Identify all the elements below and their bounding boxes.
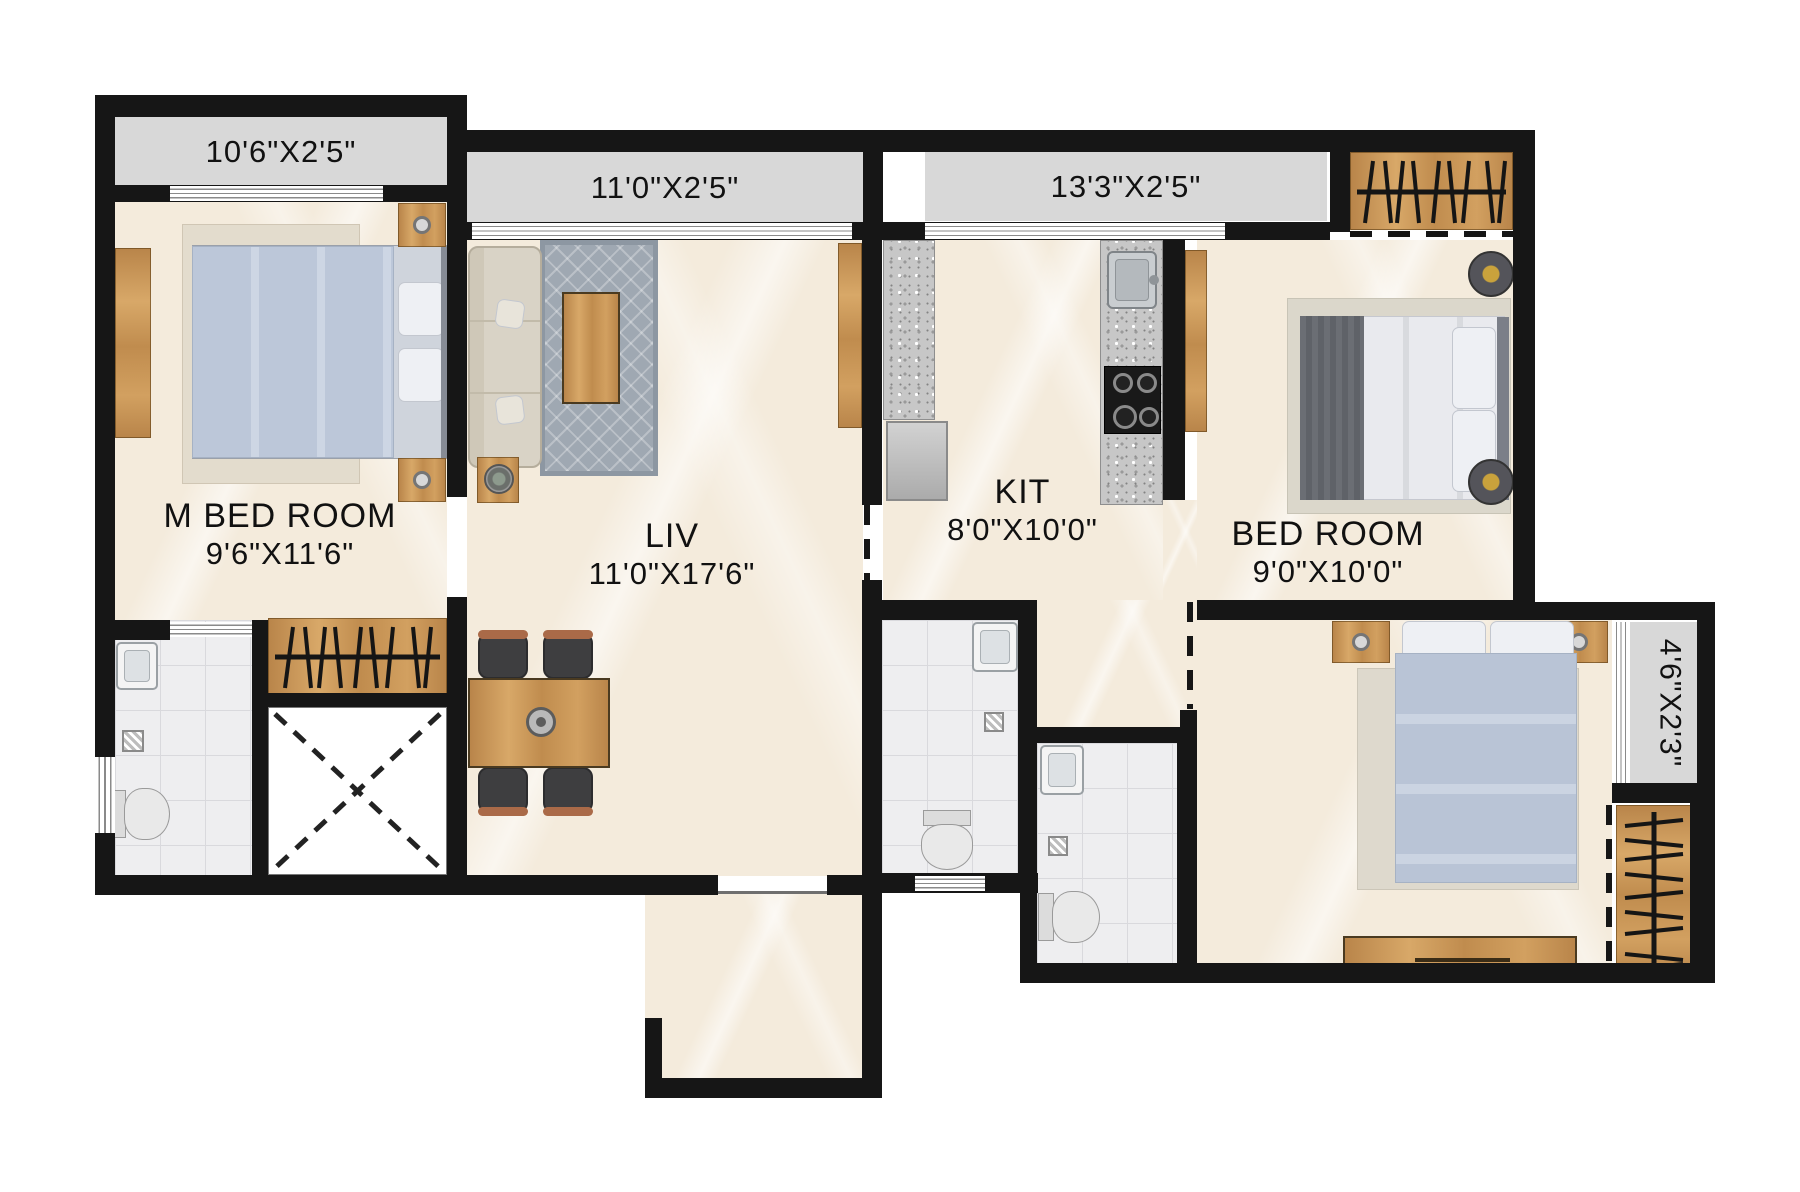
- basin-bowl-icon: [1048, 753, 1076, 787]
- dining-chair: [478, 767, 528, 813]
- wall: [862, 580, 882, 878]
- wall: [1330, 130, 1350, 232]
- attached-toilet-basin: [1040, 745, 1084, 795]
- wall: [862, 240, 882, 505]
- master-wardrobe: [115, 248, 151, 438]
- wall: [447, 130, 1535, 152]
- balcony-side-dims: 4'6"X2'3": [1652, 638, 1686, 767]
- chair-back-icon: [543, 630, 593, 639]
- coffee-table: [562, 292, 620, 404]
- master-toilet-wc: [110, 788, 170, 838]
- wall: [1037, 727, 1197, 743]
- wall: [447, 875, 718, 895]
- chair-back-icon: [543, 807, 593, 816]
- balcony-living-dims: 11'0"X2'5": [591, 170, 739, 206]
- window-kitchen-balcony: [925, 223, 1225, 239]
- teapot-icon: [526, 707, 556, 737]
- dresser-handle-icon: [1415, 958, 1510, 962]
- door-common-toilet: [915, 876, 985, 891]
- bedroom-door-dash: [1187, 602, 1193, 709]
- wall: [447, 95, 467, 222]
- burner-icon: [1113, 405, 1137, 429]
- attached-toilet-wc: [1038, 891, 1100, 941]
- room-name: LIV: [645, 517, 699, 556]
- tv-unit: [838, 243, 862, 428]
- wall: [880, 600, 1037, 620]
- duct-shaft: [268, 707, 447, 875]
- teapot-lid-icon: [536, 717, 546, 727]
- burner-icon: [1139, 407, 1159, 427]
- label-master-bedroom: M BED ROOM 9'6"X11'6": [112, 482, 448, 586]
- nightstand-knob-icon: [1352, 633, 1370, 651]
- bedroom-bottom-wardrobe-hatch: [1616, 805, 1692, 978]
- wall: [645, 1078, 882, 1098]
- dining-chair: [478, 633, 528, 679]
- passage-floor: [1037, 600, 1197, 728]
- master-bed-pillow: [398, 348, 444, 402]
- dining-chair: [543, 633, 593, 679]
- wardrobe-opening-dash: [1606, 805, 1612, 978]
- foyer-floor: [645, 893, 862, 1080]
- wall: [95, 620, 170, 640]
- master-bed-pillow: [398, 282, 444, 336]
- wall: [95, 95, 467, 117]
- room-dims: 9'0"X10'0": [1253, 554, 1404, 590]
- wardrobe-hatch-icon: [269, 619, 446, 694]
- master-bed-duvet: [192, 246, 394, 458]
- dining-chair: [543, 767, 593, 813]
- master-toilet-basin: [116, 642, 158, 690]
- balcony-living: 11'0"X2'5": [467, 152, 863, 223]
- burner-icon: [1113, 373, 1133, 393]
- wall: [1180, 710, 1197, 965]
- bedroom-bottom-duvet: [1395, 653, 1577, 883]
- wall: [1530, 602, 1715, 620]
- common-toilet-drain-icon: [984, 712, 1004, 732]
- common-toilet-wc: [921, 810, 971, 868]
- floor-plan: 10'6"X2'5" 11'0"X2'5" 13'3"X2'5" 4'6"X2'…: [0, 0, 1800, 1192]
- balcony-kitchen-dims: 13'3"X2'5": [1051, 169, 1202, 205]
- wall: [1018, 620, 1037, 876]
- wall: [1180, 963, 1715, 983]
- kitchen-sink: [1107, 251, 1157, 309]
- wall: [863, 130, 883, 240]
- wall: [862, 875, 882, 1098]
- wc-bowl-icon: [124, 788, 170, 840]
- room-dims: 11'0"X17'6": [589, 556, 756, 592]
- room-dims: 8'0"X10'0": [947, 512, 1098, 548]
- room-name: KIT: [995, 473, 1051, 512]
- wall: [268, 693, 447, 707]
- bedside-lamp-icon: [1468, 251, 1514, 297]
- bedroom-top-blanket: [1300, 316, 1364, 500]
- wc-bowl-icon: [921, 824, 973, 870]
- wall: [827, 875, 862, 895]
- wall: [1697, 602, 1715, 783]
- chair-back-icon: [478, 807, 528, 816]
- wall: [447, 597, 467, 895]
- wall: [95, 875, 447, 895]
- window-living-balcony: [472, 223, 852, 239]
- attached-toilet-drain-icon: [1048, 836, 1068, 856]
- bedroom-top-unit: [1185, 250, 1207, 432]
- stove-hob: [1104, 366, 1161, 434]
- label-kitchen: KIT 8'0"X10'0": [920, 458, 1125, 562]
- wardrobe-hatch-icon: [1617, 806, 1691, 977]
- sofa-pillow: [494, 394, 525, 425]
- sofa-pillow: [494, 298, 526, 330]
- burner-icon: [1137, 373, 1157, 393]
- master-nightstand-knob-icon: [413, 216, 431, 234]
- master-wardrobe-hatch: [268, 618, 447, 695]
- wall: [1163, 240, 1185, 500]
- common-toilet-basin: [972, 622, 1018, 672]
- balcony-master-dims: 10'6"X2'5": [206, 134, 357, 170]
- wall: [252, 620, 268, 892]
- sofa: [468, 246, 542, 468]
- window-master-toilet: [95, 757, 115, 833]
- chair-back-icon: [478, 630, 528, 639]
- wall: [1690, 803, 1715, 983]
- wardrobe-opening-dash: [1350, 231, 1513, 237]
- wall: [1612, 783, 1715, 803]
- dresser: [1343, 936, 1577, 966]
- wardrobe-hatch-icon: [1351, 153, 1512, 229]
- bedroom-top-wardrobe-hatch: [1350, 152, 1513, 230]
- basin-bowl-icon: [980, 630, 1010, 664]
- bedroom-top-pillow: [1452, 327, 1496, 409]
- kitchen-counter-left: [883, 240, 935, 420]
- faucet-icon: [1149, 275, 1159, 285]
- door-master-toilet: [170, 622, 252, 637]
- plant-icon: [484, 464, 514, 494]
- kitchen-opening-dash: [864, 505, 870, 581]
- entrance-threshold: [718, 891, 827, 894]
- sink-basin-icon: [1115, 259, 1149, 301]
- master-toilet-drain-icon: [122, 730, 144, 752]
- balcony-master: 10'6"X2'5": [115, 117, 447, 186]
- label-bedroom: BED ROOM 9'0"X10'0": [1168, 500, 1488, 604]
- window-master-balcony: [170, 186, 383, 201]
- wc-bowl-icon: [1052, 891, 1100, 943]
- basin-bowl-icon: [124, 650, 150, 682]
- room-dims: 9'6"X11'6": [206, 536, 354, 572]
- wall: [1020, 963, 1197, 983]
- window-bedroom-balcony: [1613, 622, 1629, 783]
- wall: [1513, 130, 1535, 602]
- room-name: M BED ROOM: [164, 497, 397, 536]
- room-name: BED ROOM: [1231, 515, 1424, 554]
- label-living: LIV 11'0"X17'6": [552, 502, 792, 606]
- balcony-kitchen: 13'3"X2'5": [925, 152, 1327, 221]
- wall: [447, 217, 467, 497]
- duct-cross-icon: [269, 708, 446, 874]
- bedside-lamp-icon: [1468, 459, 1514, 505]
